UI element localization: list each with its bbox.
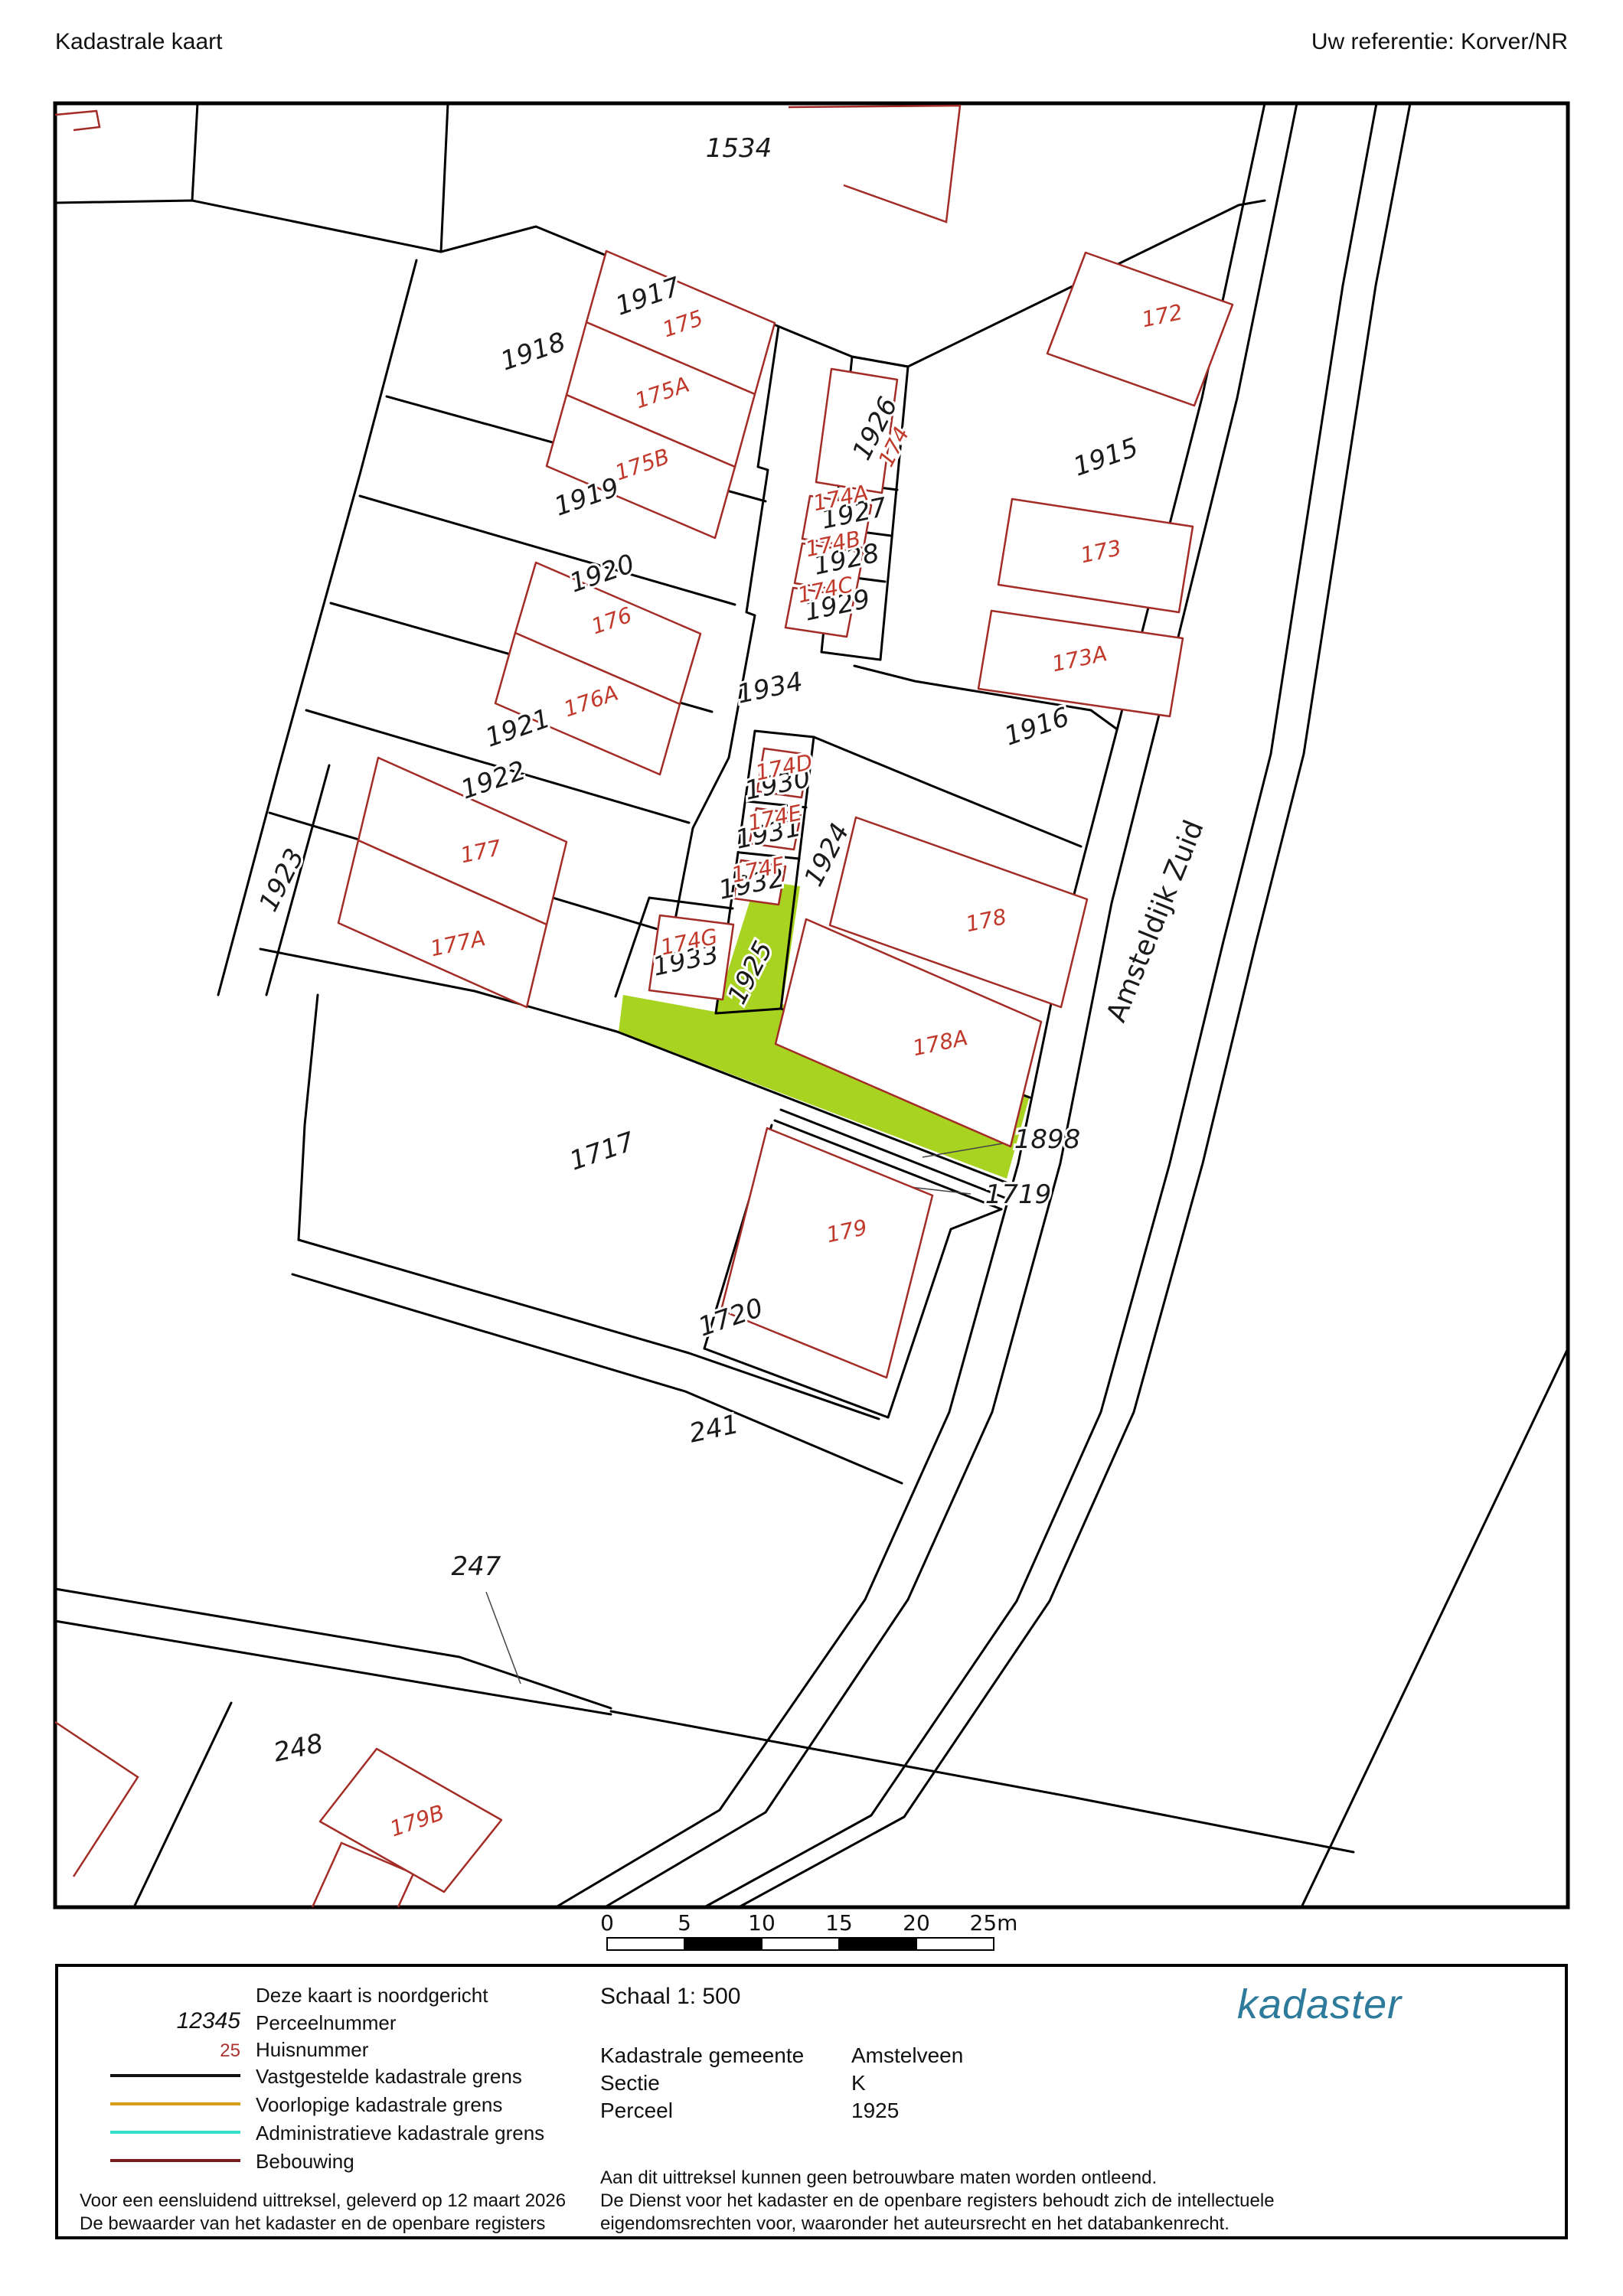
- legend-scale-text: Schaal 1: 500: [600, 1984, 740, 2010]
- legend-line-bebouwing-label: Bebouwing: [256, 2150, 354, 2174]
- scale-bar-segment: [684, 1938, 762, 1950]
- legend-gemeente-label: Kadastrale gemeente: [600, 2043, 804, 2068]
- legend-panel: Deze kaart is noordgericht 12345 Perceel…: [55, 1964, 1568, 2239]
- legend-line-administratief-label: Administratieve kadastrale grens: [256, 2122, 544, 2145]
- scale-tick-label: 10: [748, 1910, 776, 1936]
- legend-disclaimer-line2: De Dienst voor het kadaster en de openba…: [600, 2190, 1275, 2212]
- legend-gemeente-value: Amstelveen: [851, 2043, 963, 2068]
- legend-perceel-label: Perceel: [600, 2099, 673, 2123]
- legend-housenumber-sample: 25: [156, 2040, 240, 2062]
- parcel-label-247: 247: [452, 1551, 501, 1582]
- scale-tick-label: 0: [600, 1910, 614, 1936]
- legend-line-vastgesteld-swatch: [110, 2074, 240, 2077]
- cadastral-map: 1534191719181919192019211922192319261927…: [0, 0, 1623, 2296]
- scale-bar-segment: [916, 1938, 994, 1950]
- legend-sectie-value: K: [851, 2071, 866, 2095]
- legend-disclaimer-line3: eigendomsrechten voor, waaronder het aut…: [600, 2213, 1229, 2235]
- legend-issued-line1: Voor een eensluidend uittreksel, gelever…: [80, 2190, 566, 2212]
- parcel-label-1534: 1534: [706, 133, 772, 164]
- parcel-label-1719: 1719: [985, 1179, 1052, 1210]
- scale-tick-label: 5: [678, 1910, 691, 1936]
- legend-line-bebouwing-swatch: [110, 2159, 240, 2162]
- legend-line-administratief-swatch: [110, 2131, 240, 2134]
- legend-housenumber-label: Huisnummer: [256, 2038, 368, 2062]
- legend-sectie-label: Sectie: [600, 2071, 660, 2095]
- legend-north-note: Deze kaart is noordgericht: [256, 1984, 488, 2007]
- legend-line-voorlopig-label: Voorlopige kadastrale grens: [256, 2093, 502, 2117]
- scale-bar-segment: [839, 1938, 916, 1950]
- scale-tick-label: 25m: [970, 1910, 1018, 1936]
- legend-parcelnumber-label: Perceelnummer: [256, 2011, 397, 2035]
- legend-parcelnumber-sample: 12345: [156, 2008, 240, 2034]
- legend-disclaimer-line1: Aan dit uittreksel kunnen geen betrouwba…: [600, 2167, 1157, 2189]
- kadaster-logo-text: kadaster: [1237, 1981, 1402, 2028]
- legend-line-voorlopig-swatch: [110, 2102, 240, 2105]
- scale-bar-segment: [607, 1938, 684, 1950]
- legend-perceel-value: 1925: [851, 2099, 899, 2123]
- parcel-label-1898: 1898: [1014, 1124, 1081, 1155]
- scale-tick-label: 15: [825, 1910, 853, 1936]
- legend-issued-line2: De bewaarder van het kadaster en de open…: [80, 2213, 545, 2235]
- scale-tick-label: 20: [903, 1910, 930, 1936]
- scale-bar-segment: [762, 1938, 839, 1950]
- legend-line-vastgesteld-label: Vastgestelde kadastrale grens: [256, 2065, 522, 2089]
